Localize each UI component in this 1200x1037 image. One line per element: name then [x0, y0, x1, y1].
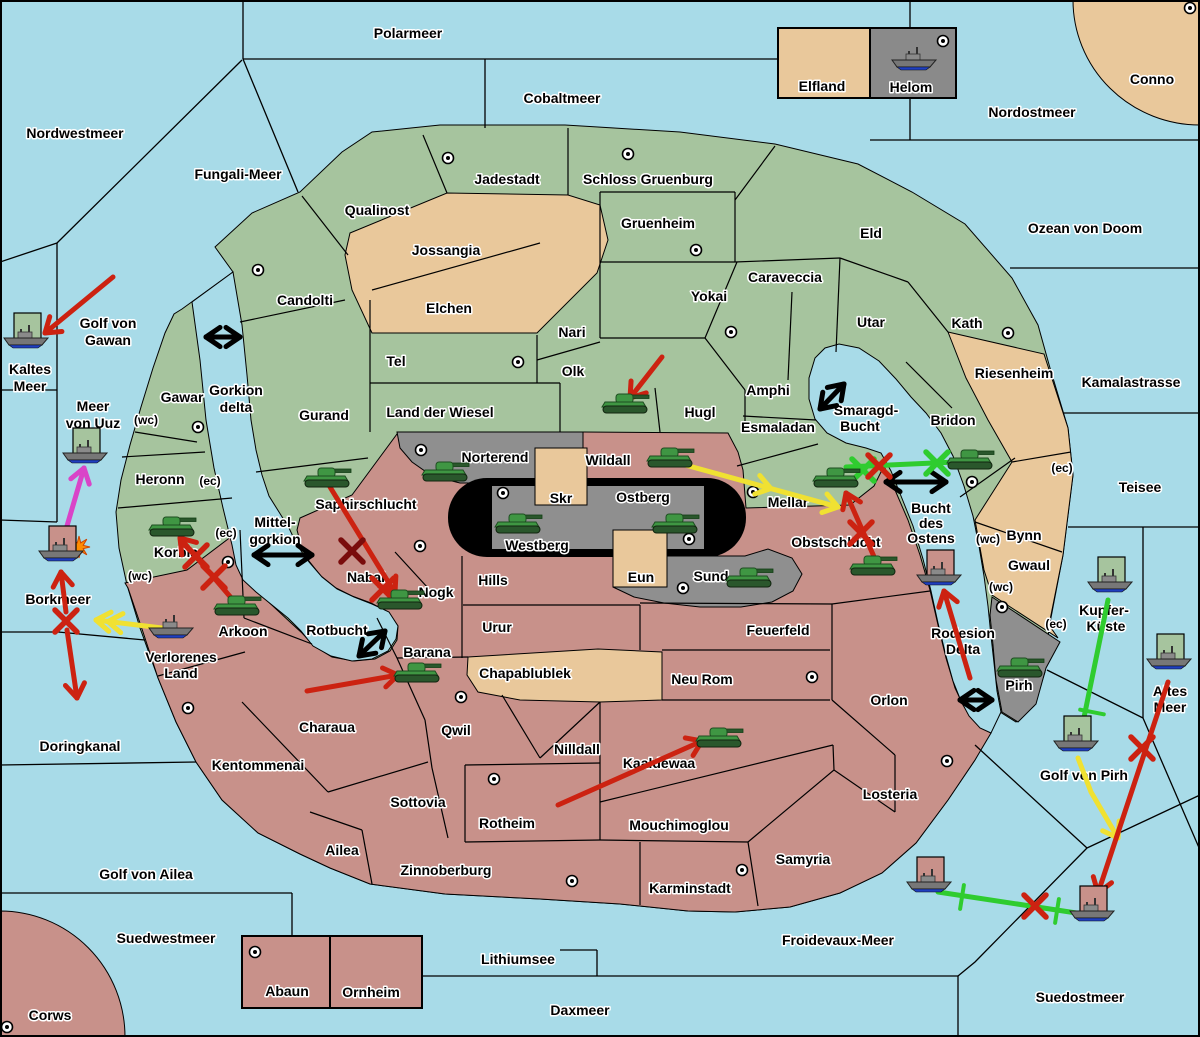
- label-qwil-90: Qwil: [441, 722, 471, 738]
- label-zinnoberburg-100: Zinnoberburg: [401, 862, 492, 878]
- label-wc-113: (wc): [976, 532, 1000, 546]
- supply-center-icon: [567, 876, 578, 887]
- supply-center-icon: [416, 445, 427, 456]
- label-kath-49: Kath: [951, 315, 982, 331]
- supply-center-icon: [807, 672, 818, 683]
- label-olk-53: Olk: [562, 363, 585, 379]
- supply-center-icon: [250, 947, 261, 958]
- supply-center-icon: [942, 756, 953, 767]
- label-nordwestmeer-2: Nordwestmeer: [26, 125, 124, 141]
- label-ostberg-63: Ostberg: [616, 489, 670, 505]
- label-smaragd-27: Smaragd-: [834, 402, 899, 418]
- label-gruenheim-43: Gruenheim: [621, 215, 695, 231]
- label-ec-110: (ec): [215, 526, 236, 540]
- supply-center-icon: [684, 534, 695, 545]
- label-samyria-98: Samyria: [776, 851, 831, 867]
- label-froidevaux-meer-25: Froidevaux-Meer: [782, 932, 895, 948]
- label-delta-15: delta: [220, 399, 253, 415]
- label-nari-52: Nari: [558, 324, 585, 340]
- label-mouchimoglou-96: Mouchimoglou: [629, 817, 729, 833]
- label-chapablublek-82: Chapablublek: [479, 665, 571, 681]
- supply-center-icon: [726, 327, 737, 338]
- label-bucht-28: Bucht: [840, 418, 880, 434]
- label-golf-von-8: Golf von: [80, 315, 137, 331]
- label-ostens-31: Ostens: [907, 530, 955, 546]
- supply-center-icon: [938, 36, 949, 47]
- label-daxmeer-24: Daxmeer: [550, 1002, 610, 1018]
- label-gawar-57: Gawar: [161, 389, 204, 405]
- label-gorkion-14: Gorkion: [209, 382, 263, 398]
- label-candolti-51: Candolti: [277, 292, 333, 308]
- label-utar-48: Utar: [857, 314, 886, 330]
- label-yokai-46: Yokai: [691, 288, 727, 304]
- label-feuerfeld-83: Feuerfeld: [746, 622, 809, 638]
- supply-center-icon: [691, 245, 702, 256]
- supply-center-icon: [183, 703, 194, 714]
- label-wc-108: (wc): [134, 413, 158, 427]
- label-bucht-29: Bucht: [911, 500, 951, 516]
- label-teisee-7: Teisee: [1119, 479, 1162, 495]
- label-hugl-68: Hugl: [684, 404, 715, 420]
- label-norterend-60: Norterend: [462, 449, 529, 465]
- label-qualinost-41: Qualinost: [345, 202, 410, 218]
- label-hills-80: Hills: [478, 572, 508, 588]
- label-saphirschlucht-59: Saphirschlucht: [315, 496, 416, 512]
- label-skr-62: Skr: [550, 490, 573, 506]
- game-map-stage: PolarmeerCobaltmeerNordwestmeerFungali-M…: [0, 0, 1200, 1037]
- label-fungali-meer-3: Fungali-Meer: [194, 166, 282, 182]
- label-caraveccia-45: Caraveccia: [748, 269, 822, 285]
- label-ozean-von-doom-5: Ozean von Doom: [1028, 220, 1142, 236]
- label-conno-107: Conno: [1130, 71, 1174, 87]
- label-helom-106: Helom: [890, 79, 933, 95]
- label-pirh-75: Pirh: [1005, 677, 1032, 693]
- label-rodesion-32: Rodesion: [931, 625, 995, 641]
- label-verlorenes-85: Verlorenes: [145, 649, 217, 665]
- label-karminstadt-101: Karminstadt: [649, 880, 731, 896]
- label-eld-47: Eld: [860, 225, 882, 241]
- label-elfland-105: Elfland: [799, 78, 846, 94]
- label-amphi-69: Amphi: [746, 382, 790, 398]
- label-land-86: Land: [164, 665, 197, 681]
- supply-center-icon: [678, 583, 689, 594]
- label-gorkion-17: gorkion: [249, 531, 300, 547]
- label-polarmeer-0: Polarmeer: [374, 25, 443, 41]
- label-land-der-wiesel-56: Land der Wiesel: [386, 404, 493, 420]
- label-losteria-97: Losteria: [863, 786, 918, 802]
- supply-center-icon: [1003, 328, 1014, 339]
- supply-center-icon: [1185, 3, 1196, 14]
- label-bridon-72: Bridon: [930, 412, 975, 428]
- label-schloss-gruenburg-40: Schloss Gruenburg: [583, 171, 713, 187]
- label-sottovia-94: Sottovia: [390, 794, 445, 810]
- supply-center-icon: [489, 774, 500, 785]
- label-wc-114: (wc): [989, 580, 1013, 594]
- label-nordostmeer-4: Nordostmeer: [988, 104, 1076, 120]
- label-kaltes-10: Kaltes: [9, 361, 51, 377]
- label-urur-81: Urur: [482, 619, 512, 635]
- label-arkoon-87: Arkoon: [219, 623, 268, 639]
- supply-center-icon: [967, 477, 978, 488]
- label-ec-115: (ec): [1045, 617, 1066, 631]
- label-westberg-64: Westberg: [505, 537, 569, 553]
- supply-center-icon: [2, 1022, 13, 1033]
- label-rotbucht-20: Rotbucht: [306, 622, 368, 638]
- label-doringkanal-19: Doringkanal: [40, 738, 121, 754]
- label-neu-rom-84: Neu Rom: [671, 671, 732, 687]
- label-kamalastrasse-6: Kamalastrasse: [1082, 374, 1181, 390]
- label-gawan-9: Gawan: [85, 332, 131, 348]
- label-heronn-58: Heronn: [136, 471, 185, 487]
- label-ec-112: (ec): [1051, 461, 1072, 475]
- label-esmaladan-70: Esmaladan: [741, 419, 815, 435]
- label-meer-11: Meer: [14, 378, 47, 394]
- label-ornheim-104: Ornheim: [342, 984, 400, 1000]
- label-suedwestmeer-22: Suedwestmeer: [117, 930, 216, 946]
- label-kentommenai-91: Kentommenai: [212, 757, 305, 773]
- label-gwaul-74: Gwaul: [1008, 557, 1050, 573]
- label-lithiumsee-23: Lithiumsee: [481, 951, 555, 967]
- label-altes-35: Altes: [1153, 683, 1187, 699]
- supply-center-icon: [456, 692, 467, 703]
- supply-center-icon: [737, 865, 748, 876]
- supply-center-icon: [443, 153, 454, 164]
- label-orlon-76: Orlon: [870, 692, 907, 708]
- supply-center-icon: [997, 602, 1008, 613]
- label-wc-111: (wc): [128, 569, 152, 583]
- label-des-30: des: [919, 515, 943, 531]
- label-gurand-55: Gurand: [299, 407, 349, 423]
- label-sund-66: Sund: [694, 568, 729, 584]
- label-rotheim-95: Rotheim: [479, 815, 535, 831]
- label-corws-102: Corws: [29, 1007, 72, 1023]
- label-eun-65: Eun: [628, 569, 654, 585]
- label-wildall-61: Wildall: [586, 452, 631, 468]
- label-bynn-73: Bynn: [1007, 527, 1042, 543]
- label-jossangia-42: Jossangia: [412, 242, 481, 258]
- supply-center-icon: [193, 422, 204, 433]
- label-elchen-44: Elchen: [426, 300, 472, 316]
- label-suedostmeer-26: Suedostmeer: [1036, 989, 1125, 1005]
- supply-center-icon: [253, 265, 264, 276]
- label-riesenheim-50: Riesenheim: [975, 365, 1054, 381]
- label-cobaltmeer-1: Cobaltmeer: [523, 90, 601, 106]
- label-mittel-16: Mittel-: [254, 514, 296, 530]
- supply-center-icon: [498, 488, 509, 499]
- supply-center-icon: [513, 357, 524, 368]
- label-abaun-103: Abaun: [265, 983, 309, 999]
- label-jadestadt-39: Jadestadt: [474, 171, 540, 187]
- label-nilldall-92: Nilldall: [554, 741, 600, 757]
- label-golf-von-ailea-21: Golf von Ailea: [99, 866, 193, 882]
- supply-center-icon: [415, 541, 426, 552]
- label-tel-54: Tel: [386, 353, 405, 369]
- label-ailea-99: Ailea: [325, 842, 359, 858]
- supply-center-icon: [623, 149, 634, 160]
- label-meer-12: Meer: [77, 398, 110, 414]
- wargame-map: PolarmeerCobaltmeerNordwestmeerFungali-M…: [0, 0, 1200, 1037]
- label-barana-88: Barana: [403, 644, 451, 660]
- label-borkmeer-18: Borkmeer: [25, 591, 91, 607]
- label-ec-109: (ec): [199, 474, 220, 488]
- label-charaua-89: Charaua: [299, 719, 355, 735]
